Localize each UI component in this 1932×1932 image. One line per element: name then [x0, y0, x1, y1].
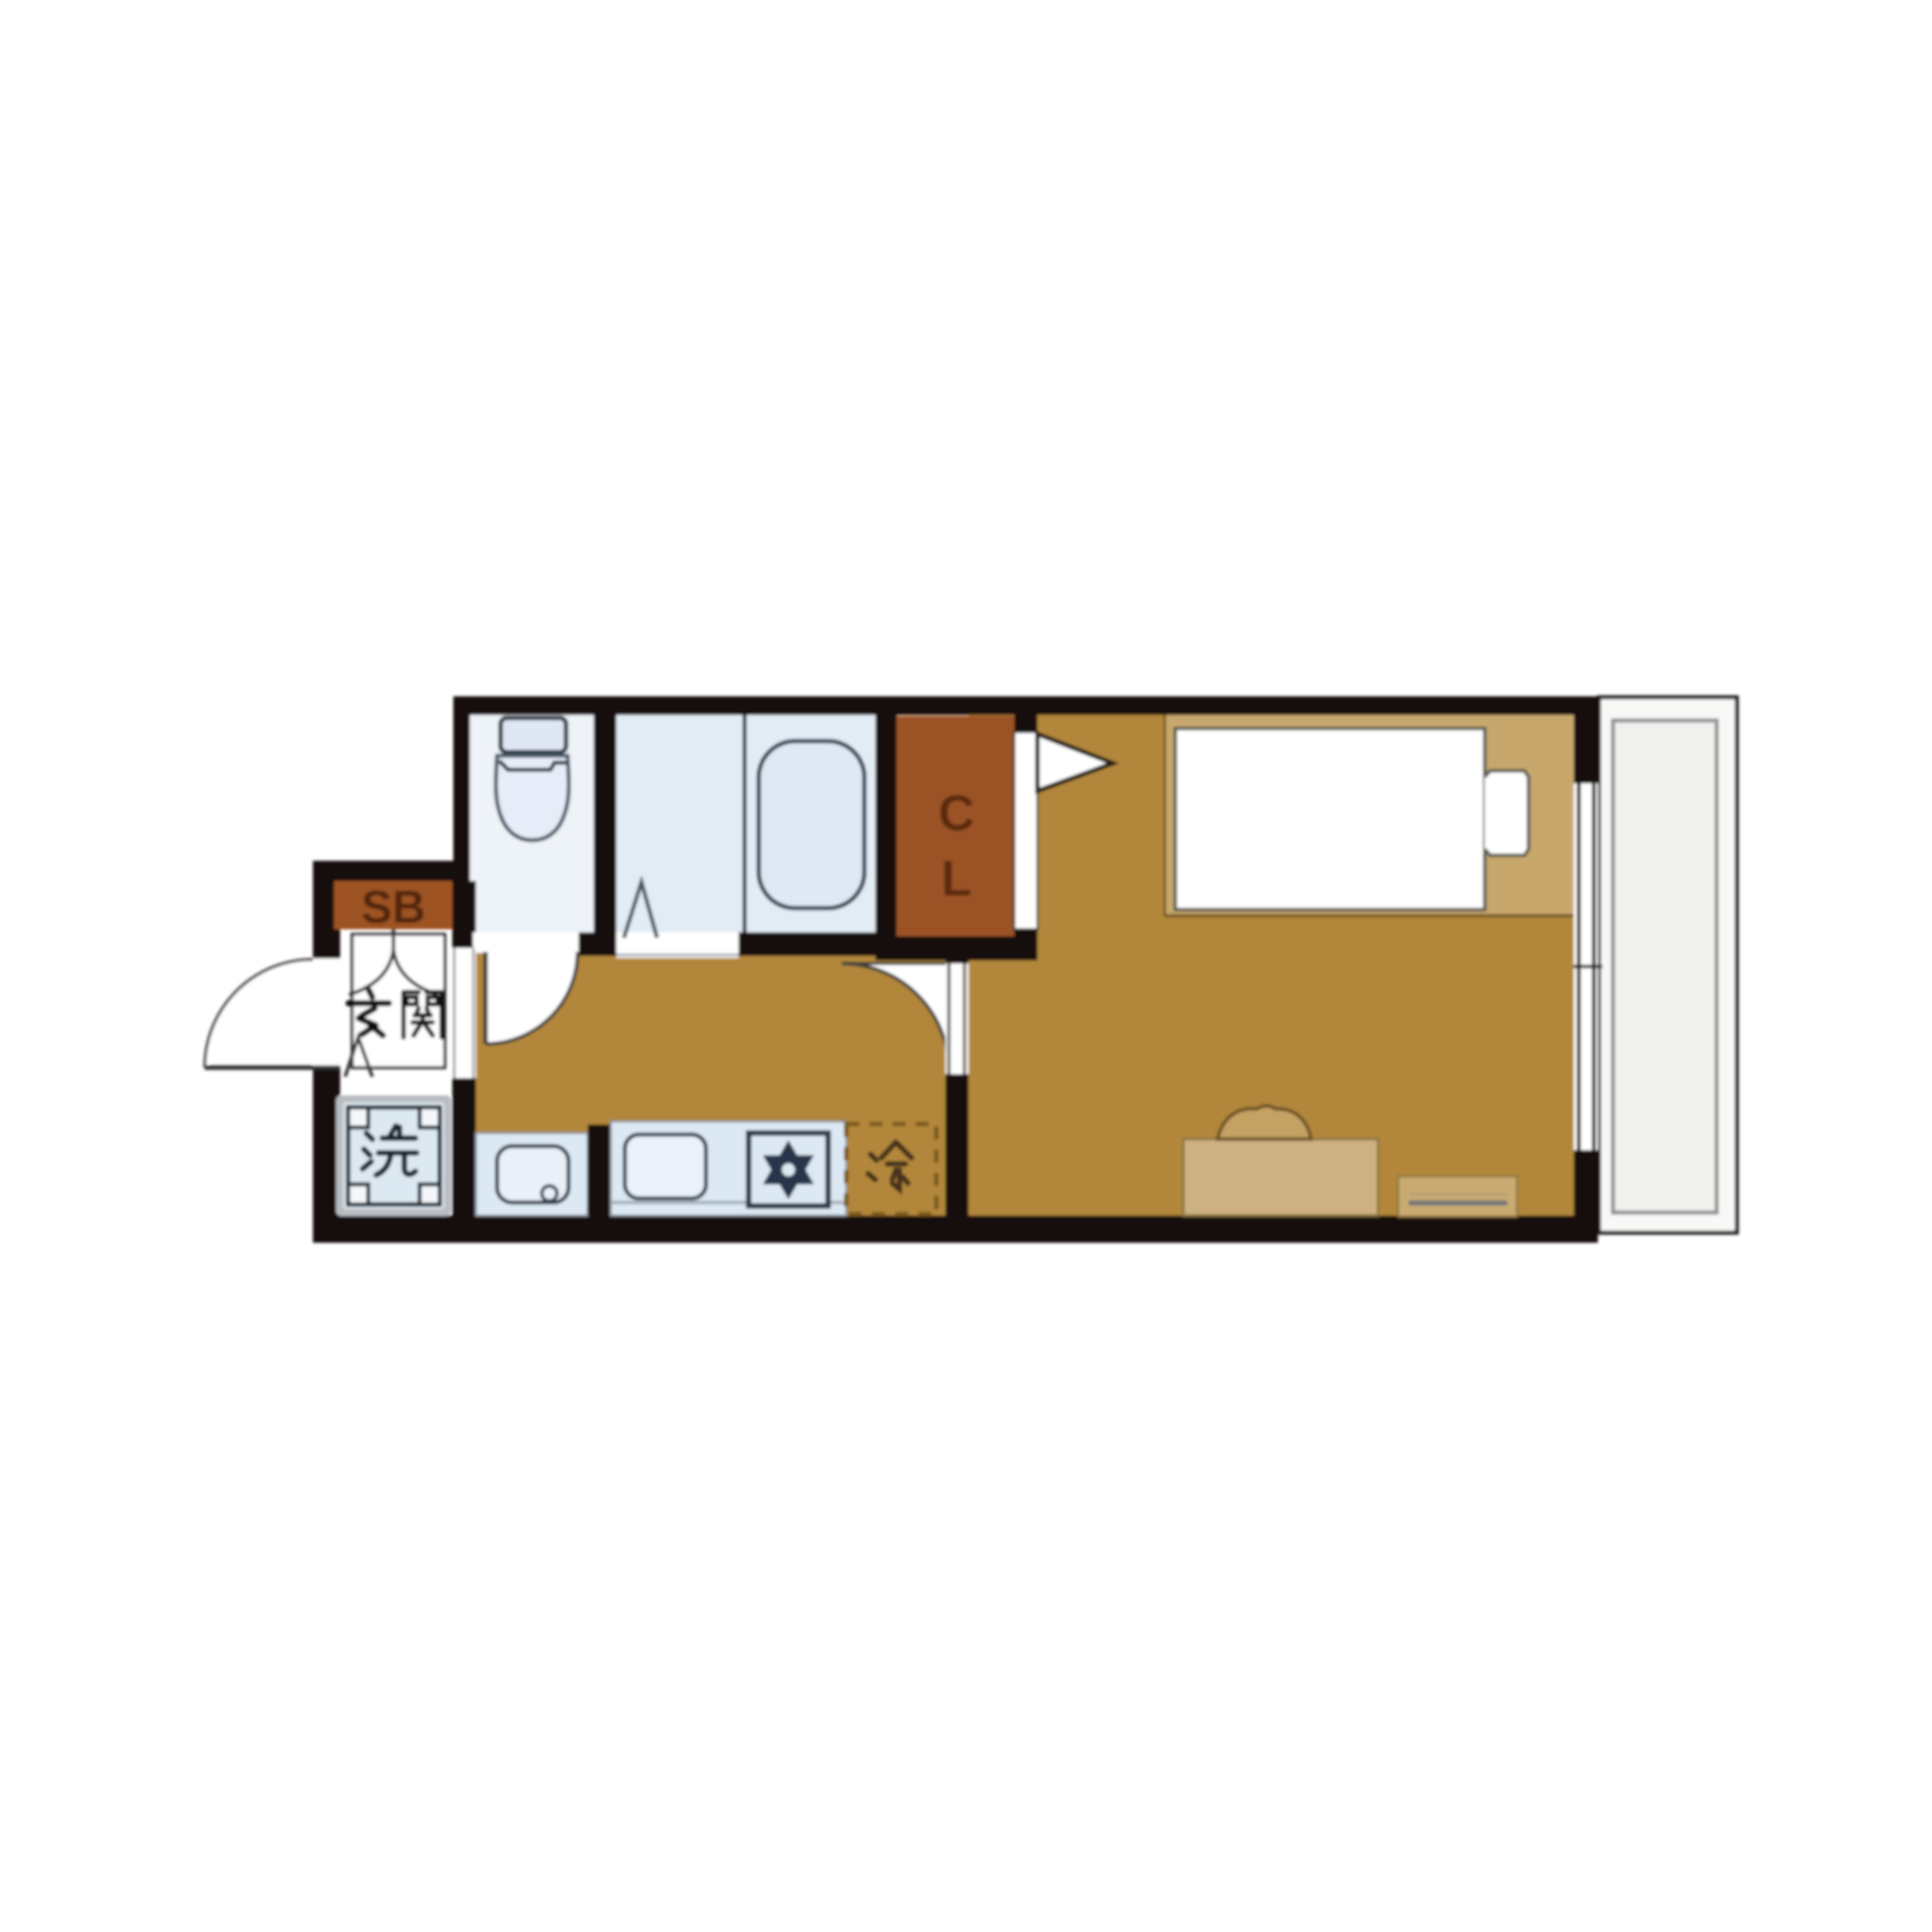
svg-text:C: C — [938, 785, 975, 841]
svg-text:L: L — [941, 850, 972, 907]
svg-text:SB: SB — [361, 881, 426, 933]
